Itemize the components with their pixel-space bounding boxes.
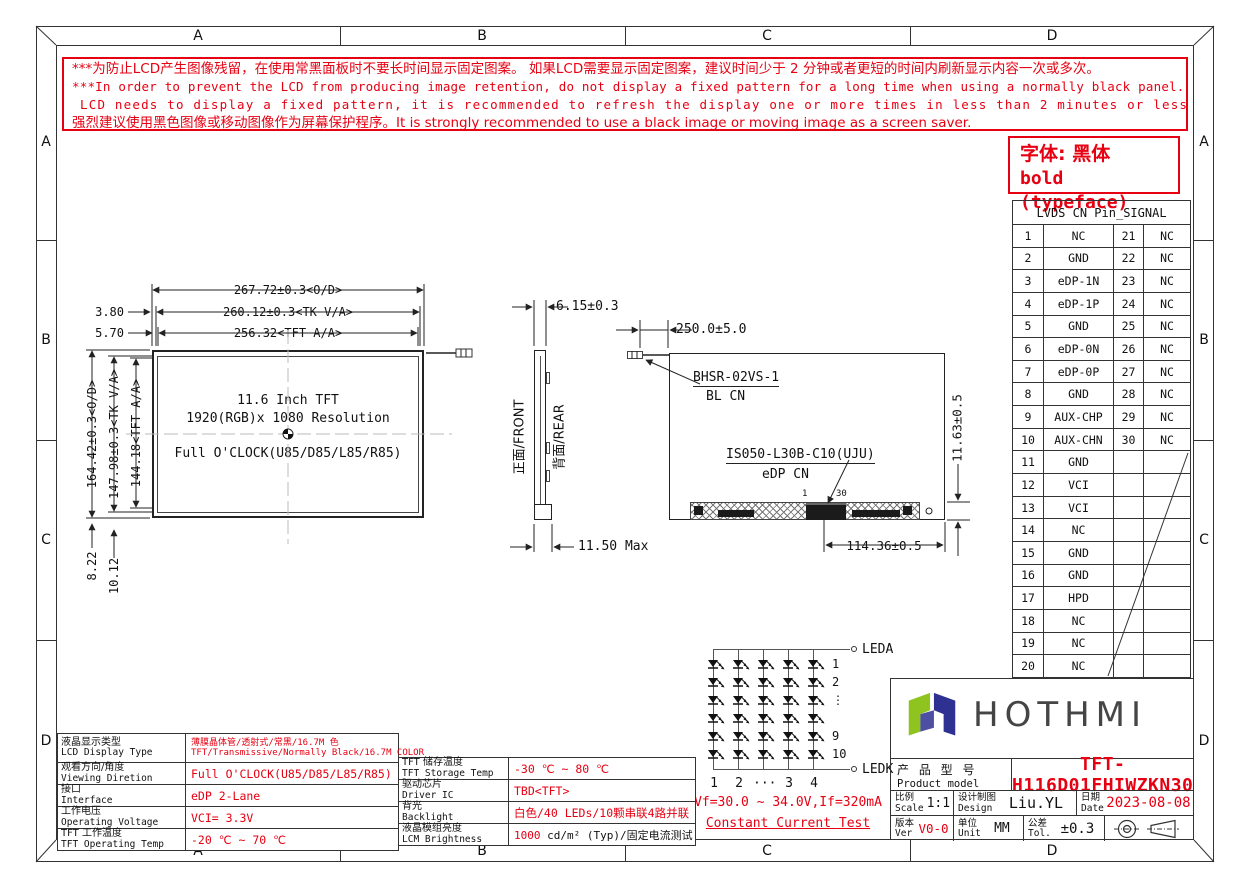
led-icon — [805, 695, 827, 709]
leda-label: LEDA — [862, 642, 893, 657]
grid-label-bottom-c: C — [762, 843, 772, 859]
lvds-row: 14NC — [1013, 519, 1191, 542]
lvds-row: 5GND25NC — [1013, 315, 1191, 338]
led-cathode-terminal — [851, 766, 857, 772]
grid-label-top-d: D — [1047, 28, 1058, 44]
panel-viewing-text: Full O'CLOCK(U85/D85/L85/R85) — [160, 446, 416, 461]
side-view-inner-line — [540, 356, 541, 516]
designer-value: Liu.YL — [996, 794, 1076, 812]
led-icon — [780, 695, 802, 709]
spec-row: 液晶显示类型LCD Display Type薄膜晶体管/透射式/常黑/16.7M… — [58, 734, 399, 763]
led-wire — [713, 769, 850, 770]
dim-thickness: 6.15±0.3 — [556, 299, 619, 314]
date-value: 2023-08-08 — [1104, 795, 1193, 811]
product-label-cell: 产 品 型 号 Product model — [891, 758, 1011, 790]
dim-height-aa: 144.18<TFT A/A> — [129, 376, 143, 490]
front-view-center-text: 11.6 Inch TFT 1920(RGB)x 1080 Resolution — [160, 392, 416, 428]
led-icon — [805, 659, 827, 673]
led-symbol — [805, 730, 827, 744]
lvds-row: 10AUX-CHN30NC — [1013, 428, 1191, 451]
design-cell: 设计制图Design Liu.YL — [953, 790, 1076, 815]
product-label-zh: 产 品 型 号 — [891, 759, 1011, 778]
spec-row: 驱动芯片Driver ICTBD<TFT> — [399, 780, 696, 802]
dim-offset-5-70: 5.70 — [92, 326, 124, 340]
led-icon — [755, 731, 777, 745]
band-divider — [340, 26, 341, 45]
ledk-label: LEDK — [862, 762, 893, 777]
led-icon — [730, 695, 752, 709]
bl-cn-label: BL CN — [706, 389, 745, 404]
dim-connector-offset: 114.36±0.5 — [843, 538, 924, 553]
led-anode-terminal — [851, 646, 857, 652]
led-icon — [780, 713, 802, 727]
product-label-en: Product model — [891, 778, 1011, 790]
band-divider — [1194, 440, 1214, 441]
rear-connector-block — [718, 510, 754, 517]
led-symbol — [805, 676, 827, 690]
led-symbol — [755, 730, 777, 744]
bl-connector-label: BHSR-02VS-1 — [693, 370, 779, 387]
led-symbol — [805, 694, 827, 708]
edp-connector — [806, 503, 846, 520]
dim-offset-10-12: 10.12 — [107, 555, 121, 597]
led-col-label: ··· — [753, 776, 775, 791]
dim-height-od: 164.42±0.3<O/D> — [85, 377, 99, 491]
spec-row: 背光Backlight白色/40 LEDs/10颗串联4路并联 — [399, 802, 696, 824]
grid-label-left-d: D — [41, 733, 52, 749]
led-col-label: 2 — [728, 776, 750, 791]
led-symbol — [755, 712, 777, 726]
projection-cell — [1104, 815, 1193, 841]
spec-row: 接口InterfaceeDP 2-Lane — [58, 785, 399, 807]
led-icon — [755, 659, 777, 673]
led-icon — [805, 749, 827, 763]
spec-table-left: 液晶显示类型LCD Display Type薄膜晶体管/透射式/常黑/16.7M… — [57, 733, 399, 851]
lvds-row: 3eDP-1N23NC — [1013, 270, 1191, 293]
lvds-row: 11GND — [1013, 451, 1191, 474]
led-symbol — [755, 658, 777, 672]
warning-note: ***为防止LCD产生图像残留，在使用常黑面板时不要长时间显示固定图案。 如果L… — [62, 57, 1188, 131]
led-symbol — [705, 658, 727, 672]
led-col-label: 3 — [778, 776, 800, 791]
spec-table-right: TFT 储存温度TFT Storage Temp-30 ℃ ~ 80 ℃驱动芯片… — [398, 757, 696, 846]
front-face-label: 正面/FRONT — [509, 397, 528, 478]
warning-line-4: 强烈建议使用黑色图像或移动图像作为屏幕保护程序。It is strongly r… — [72, 114, 1180, 131]
rear-screw-pad — [903, 506, 912, 515]
typeface-note: 字体: 黑体 bold (typeface) — [1008, 136, 1180, 194]
tolerance-value: ±0.3 — [1051, 821, 1104, 837]
led-symbol — [705, 730, 727, 744]
tolerance-cell: 公差Tol. ±0.3 — [1023, 815, 1104, 841]
edp-pin-last: 30 — [836, 489, 847, 499]
projection-symbol-icon — [1113, 817, 1185, 841]
band-divider — [36, 440, 56, 441]
dim-max-thickness: 11.50 Max — [578, 539, 648, 554]
led-symbol — [755, 676, 777, 690]
scale-label-zh: 比例 — [895, 793, 924, 804]
grid-label-left-c: C — [41, 532, 51, 548]
lvds-row: 4eDP-1P24NC — [1013, 292, 1191, 315]
unit-label-en: Unit — [958, 829, 981, 840]
typeface-note-line1: 字体: 黑体 — [1020, 141, 1178, 167]
dim-pcb-height: 11.63±0.5 — [950, 391, 965, 465]
led-symbol — [730, 694, 752, 708]
grid-label-bottom-d: D — [1047, 843, 1058, 859]
band-divider — [625, 26, 626, 45]
led-icon — [755, 713, 777, 727]
spec-row: TFT 储存温度TFT Storage Temp-30 ℃ ~ 80 ℃ — [399, 758, 696, 780]
tol-label-en: Tol. — [1028, 829, 1051, 840]
unit-cell: 单位Unit MM — [953, 815, 1023, 841]
company-logo-icon — [901, 687, 963, 749]
lvds-row: 19NC — [1013, 632, 1191, 655]
led-symbol — [780, 658, 802, 672]
led-symbol — [705, 694, 727, 708]
lvds-row: 1NC21NC — [1013, 225, 1191, 248]
led-icon — [755, 695, 777, 709]
lvds-row: 6eDP-0N26NC — [1013, 338, 1191, 361]
scale-label-en: Scale — [895, 804, 924, 815]
led-icon — [705, 677, 727, 691]
led-col-label: 1 — [703, 776, 725, 791]
led-icon — [705, 731, 727, 745]
side-view-foot — [534, 504, 552, 520]
dim-offset-8-22: 8.22 — [85, 549, 99, 584]
led-icon — [730, 677, 752, 691]
led-symbol — [730, 712, 752, 726]
led-icon — [805, 677, 827, 691]
dim-width-od: 267.72±0.3<O/D> — [231, 283, 345, 297]
lvds-row: 16GND — [1013, 564, 1191, 587]
design-label-en: Design — [958, 804, 996, 815]
led-symbol — [755, 748, 777, 762]
scale-value: 1:1 — [924, 796, 953, 811]
led-symbol — [780, 748, 802, 762]
led-symbol — [805, 748, 827, 762]
led-row-label: 2 — [832, 675, 839, 689]
lvds-row: 17HPD — [1013, 587, 1191, 610]
led-icon — [780, 677, 802, 691]
grid-label-right-c: C — [1199, 532, 1209, 548]
edp-connector-label: IS050-L30B-C10(UJU) — [726, 447, 875, 464]
edp-cn-label: eDP CN — [762, 467, 809, 482]
bl-cable-connector — [627, 351, 643, 359]
spec-row: TFT 工作温度TFT Operating Temp-20 ℃ ~ 70 ℃ — [58, 829, 399, 851]
scale-cell: 比例Scale 1:1 — [891, 790, 953, 815]
led-icon — [730, 659, 752, 673]
grid-label-left-b: B — [41, 332, 51, 348]
led-icon — [705, 659, 727, 673]
led-row-label: 10 — [832, 747, 846, 761]
date-label-en: Date — [1081, 804, 1104, 815]
grid-label-top-c: C — [762, 28, 772, 44]
grid-label-top-a: A — [193, 28, 203, 44]
grid-label-right-d: D — [1199, 733, 1210, 749]
dim-cable-length: 250.0±5.0 — [676, 322, 746, 337]
rear-screw-pad — [694, 506, 703, 515]
led-wire — [713, 649, 850, 650]
warning-line-1: ***为防止LCD产生图像残留，在使用常黑面板时不要长时间显示固定图案。 如果L… — [72, 60, 1180, 78]
lvds-row: 2GND22NC — [1013, 247, 1191, 270]
led-symbol — [730, 658, 752, 672]
led-icon — [730, 731, 752, 745]
front-view-active-area — [157, 356, 419, 513]
lvds-row: 12VCI — [1013, 474, 1191, 497]
led-icon — [730, 749, 752, 763]
edp-pin-first: 1 — [802, 489, 807, 499]
company-name: HOTHMI — [973, 695, 1147, 735]
led-row-label: 1 — [832, 657, 839, 671]
lvds-row: 7eDP-0P27NC — [1013, 360, 1191, 383]
lvds-row: 13VCI — [1013, 496, 1191, 519]
rear-connector-block — [852, 510, 900, 517]
band-divider — [910, 26, 911, 45]
led-icon — [805, 731, 827, 745]
led-symbol — [705, 712, 727, 726]
grid-label-right-a: A — [1199, 134, 1209, 150]
led-icon — [755, 749, 777, 763]
led-symbol — [730, 676, 752, 690]
design-label-zh: 设计制图 — [958, 793, 996, 804]
title-block: HOTHMI 产 品 型 号 Product model TFT-H116D01… — [890, 678, 1194, 840]
band-divider — [1194, 640, 1214, 641]
panel-resolution-text: 1920(RGB)x 1080 Resolution — [160, 410, 416, 428]
led-icon — [755, 677, 777, 691]
band-divider — [1194, 240, 1214, 241]
panel-size-text: 11.6 Inch TFT — [160, 392, 416, 410]
led-symbol — [780, 694, 802, 708]
led-symbol — [805, 712, 827, 726]
product-model-cell: TFT-H116D01FHIWZKN30 — [1011, 758, 1193, 790]
led-row-label: ⋮ — [832, 693, 844, 707]
logo-cell: HOTHMI — [891, 679, 1193, 758]
led-test-text: Constant Current Test — [690, 816, 886, 831]
led-icon — [780, 659, 802, 673]
band-divider — [36, 640, 56, 641]
led-icon — [730, 713, 752, 727]
band-divider — [910, 840, 911, 862]
band-divider — [36, 240, 56, 241]
version-value: V0-0 — [914, 821, 953, 836]
ver-label-en: Ver — [895, 829, 914, 840]
led-symbol — [755, 694, 777, 708]
side-view-bump — [546, 372, 550, 384]
spec-row: 液晶模组亮度LCM Brightness1000 cd/m² (Typ)/固定电… — [399, 824, 696, 846]
warning-line-2: ***In order to prevent the LCD from prod… — [72, 78, 1180, 96]
lvds-pin-table: LVDS CN Pin_SIGNAL 1NC21NC2GND22NC3eDP-1… — [1012, 200, 1191, 678]
led-symbol — [705, 748, 727, 762]
led-icon — [705, 749, 727, 763]
dim-offset-3-80: 3.80 — [92, 305, 124, 319]
dim-height-tk: 147.98±0.3<TK V/A> — [107, 366, 121, 502]
version-cell: 版本Ver V0-0 — [891, 815, 953, 841]
led-symbol — [780, 676, 802, 690]
lvds-row: 18NC — [1013, 609, 1191, 632]
dim-width-tk: 260.12±0.3<TK V/A> — [220, 305, 356, 319]
led-row-label: 9 — [832, 729, 839, 743]
date-label-zh: 日期 — [1081, 793, 1104, 804]
led-icon — [780, 731, 802, 745]
dim-width-aa: 256.32<TFT A/A> — [231, 326, 345, 340]
lvds-row: 8GND28NC — [1013, 383, 1191, 406]
led-symbol — [730, 730, 752, 744]
grid-label-top-b: B — [477, 28, 487, 44]
grid-label-right-b: B — [1199, 332, 1209, 348]
lvds-row: 15GND — [1013, 541, 1191, 564]
spec-row: 工作电压Operating VoltageVCI= 3.3V — [58, 807, 399, 829]
led-col-label: 4 — [803, 776, 825, 791]
lvds-row: 20NC — [1013, 655, 1191, 678]
led-spec-text: Vf=30.0 ~ 34.0V,If=320mA — [690, 795, 886, 810]
warning-line-3: LCD needs to display a fixed pattern, it… — [72, 96, 1180, 114]
led-symbol — [780, 712, 802, 726]
led-icon — [780, 749, 802, 763]
date-cell: 日期Date 2023-08-08 — [1076, 790, 1193, 815]
led-symbol — [805, 658, 827, 672]
lvds-row: 9AUX-CHP29NC — [1013, 406, 1191, 429]
lvds-table-title: LVDS CN Pin_SIGNAL — [1013, 201, 1191, 225]
spec-row: 观看方向/角度Viewing DiretionFull O'CLOCK(U85/… — [58, 763, 399, 785]
led-symbol — [780, 730, 802, 744]
drawing-sheet: A B C D A B C D A B C D A B C D ***为防止LC… — [0, 0, 1250, 883]
led-icon — [705, 695, 727, 709]
led-icon — [705, 713, 727, 727]
led-symbol — [705, 676, 727, 690]
grid-label-left-a: A — [41, 134, 51, 150]
led-symbol — [730, 748, 752, 762]
led-icon — [805, 713, 827, 727]
rear-face-label: 背面/REAR — [549, 401, 568, 473]
unit-value: MM — [981, 821, 1023, 836]
